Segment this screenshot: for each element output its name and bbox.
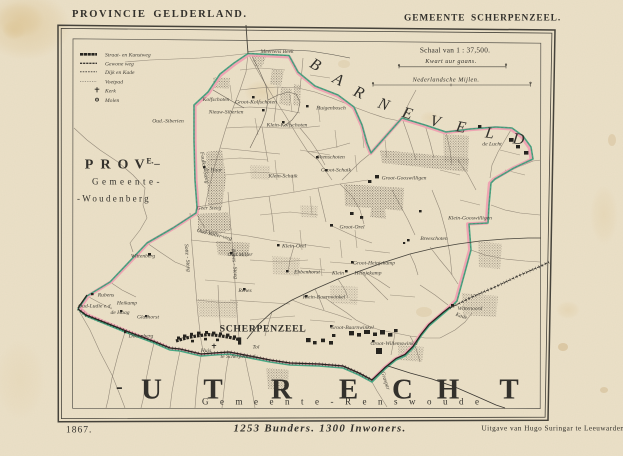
svg-text:PROVINCIE GELDERLAND.: PROVINCIE GELDERLAND. — [72, 9, 248, 20]
svg-text:Gemeente-Renswoude: Gemeente-Renswoude — [202, 397, 490, 407]
svg-text:R: R — [100, 158, 111, 173]
svg-text:Straat- en Kunstweg: Straat- en Kunstweg — [105, 53, 151, 59]
svg-text:D: D — [511, 130, 526, 148]
svg-text:1253 Bunders. 1300 Inwoners.: 1253 Bunders. 1300 Inwoners. — [234, 423, 407, 435]
svg-text:Dijk en Kade: Dijk en Kade — [104, 70, 135, 76]
svg-text:Ebbenhorst: Ebbenhorst — [293, 270, 320, 276]
svg-text:Klein-Kolfschoten: Klein-Kolfschoten — [266, 122, 308, 129]
svg-text:-: - — [116, 376, 123, 398]
svg-text:Groot-Schaik: Groot-Schaik — [321, 168, 351, 174]
svg-text:O: O — [118, 158, 129, 173]
svg-text:P: P — [85, 158, 94, 173]
svg-text:de Haag: de Haag — [110, 310, 129, 316]
svg-text:Groot-Kolfschoten: Groot-Kolfschoten — [235, 99, 277, 106]
svg-text:Nederlandsche Mijlen.: Nederlandsche Mijlen. — [412, 76, 480, 83]
svg-text:Kolfschoten: Kolfschoten — [202, 96, 230, 103]
svg-text:Klein-Schaik: Klein-Schaik — [268, 174, 298, 180]
svg-text:1867.: 1867. — [66, 426, 92, 436]
svg-text:Oud.-Siberien: Oud.-Siberien — [152, 119, 184, 125]
svg-text:Wittenberg: Wittenberg — [131, 254, 156, 260]
svg-text:V: V — [134, 158, 144, 173]
svg-text:Huigenbosch: Huigenbosch — [315, 106, 346, 112]
svg-text:Gewone weg: Gewone weg — [105, 62, 134, 68]
svg-text:Klein: Klein — [331, 271, 344, 277]
svg-text:Gemeente-: Gemeente- — [92, 177, 163, 187]
svg-text:SCHERPENZEEL: SCHERPENZEEL — [220, 324, 307, 335]
svg-text:GEMEENTE SCHERPENZEEL.: GEMEENTE SCHERPENZEEL. — [404, 14, 561, 24]
svg-text:T: T — [499, 374, 518, 406]
svg-text:Groot-Heinjekamp: Groot-Heinjekamp — [353, 261, 395, 267]
svg-text:Breeschoten: Breeschoten — [420, 236, 448, 242]
svg-text:Doornberg: Doornberg — [128, 334, 154, 340]
svg-text:Kwart uur gaans.: Kwart uur gaans. — [424, 58, 477, 65]
svg-text:Wittenoord: Wittenoord — [458, 306, 483, 312]
svg-text:Veenschoten: Veenschoten — [317, 155, 345, 161]
svg-text:Huis: Huis — [200, 348, 212, 354]
svg-text:Groot-Gooswilligen: Groot-Gooswilligen — [382, 176, 427, 182]
svg-text:Klein-Orel: Klein-Orel — [281, 244, 306, 250]
svg-text:Geer Steeg: Geer Steeg — [197, 206, 222, 212]
svg-text:Glashorst: Glashorst — [137, 315, 160, 321]
svg-text:–: – — [153, 158, 160, 170]
svg-text:Molen: Molen — [104, 98, 119, 104]
svg-text:Groot-Willemswinkel: Groot-Willemswinkel — [370, 341, 418, 347]
svg-text:Klein-Gooswilligen: Klein-Gooswilligen — [447, 216, 492, 222]
svg-text:Heikamp: Heikamp — [116, 301, 137, 307]
svg-text:Heinjekamp: Heinjekamp — [353, 271, 381, 277]
svg-text:Groot-Baarnwinkel: Groot-Baarnwinkel — [330, 325, 374, 331]
svg-text:Meertens Beek: Meertens Beek — [259, 49, 294, 55]
svg-text:Klein-Baarnwinkel: Klein-Baarnwinkel — [302, 295, 346, 301]
svg-text:-Woudenberg: -Woudenberg — [77, 194, 151, 204]
svg-text:Groot-Orel: Groot-Orel — [339, 225, 365, 231]
svg-text:Oud-Ludie e.d.: Oud-Ludie e.d. — [78, 304, 112, 310]
svg-text:Voetpad: Voetpad — [105, 80, 123, 86]
svg-text:te Scherpenzeel: te Scherpenzeel — [221, 354, 256, 360]
svg-text:Kerk: Kerk — [104, 88, 116, 94]
svg-text:Renes: Renes — [237, 288, 251, 294]
svg-text:Schaal van 1 : 37,500.: Schaal van 1 : 37,500. — [420, 46, 490, 55]
svg-text:Uitgave van Hugo Suringar te L: Uitgave van Hugo Suringar te Leeuwarden — [481, 425, 623, 433]
svg-text:Rubens: Rubens — [97, 293, 114, 299]
svg-text:E.: E. — [146, 157, 153, 166]
svg-text:Tol: Tol — [253, 345, 260, 351]
svg-text:U: U — [141, 374, 162, 406]
svg-text:Nieuw-Siberien: Nieuw-Siberien — [208, 110, 244, 116]
